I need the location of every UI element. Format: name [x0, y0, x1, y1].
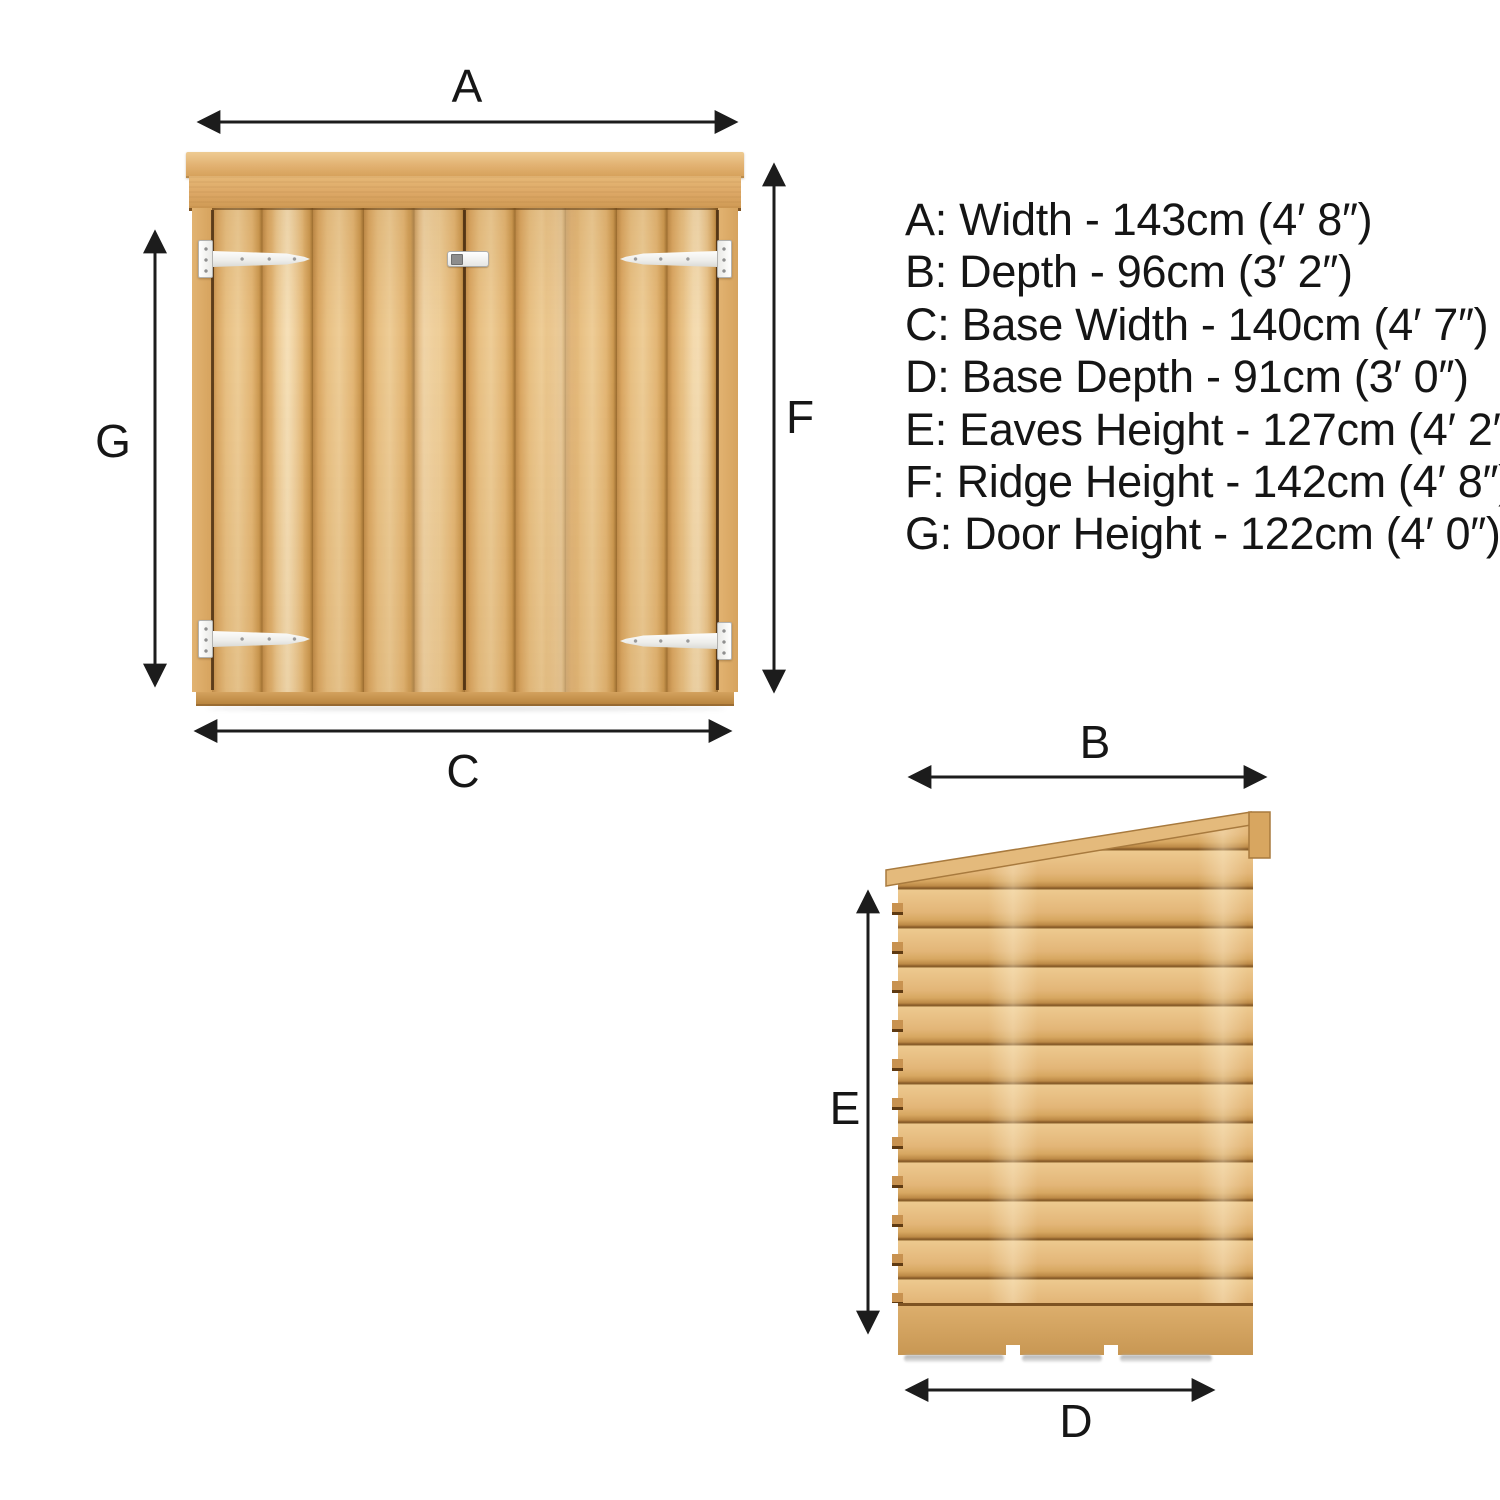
spec-line-width: A: Width - 143cm (4′ 8″): [905, 194, 1465, 246]
spec-line-door-height: G: Door Height - 122cm (4′ 0″): [905, 508, 1465, 560]
dim-label-F: F: [786, 394, 814, 440]
dimension-spec-list: A: Width - 143cm (4′ 8″) B: Depth - 96cm…: [905, 194, 1465, 561]
dim-label-A: A: [452, 63, 483, 109]
dim-label-G: G: [95, 418, 131, 464]
spec-line-ridge-height: F: Ridge Height - 142cm (4′ 8″): [905, 456, 1465, 508]
dim-label-D: D: [1059, 1398, 1092, 1444]
dim-label-E: E: [830, 1085, 861, 1131]
spec-line-depth: B: Depth - 96cm (3′ 2″): [905, 246, 1465, 298]
shed-dimensions-diagram: A F G C B E D A: Width - 143cm (4′ 8″) B…: [0, 0, 1500, 1500]
dim-label-C: C: [446, 748, 479, 794]
dim-label-B: B: [1080, 719, 1111, 765]
spec-line-eaves-height: E: Eaves Height - 127cm (4′ 2″): [905, 404, 1465, 456]
spec-line-base-width: C: Base Width - 140cm (4′ 7″): [905, 299, 1465, 351]
spec-line-base-depth: D: Base Depth - 91cm (3′ 0″): [905, 351, 1465, 403]
